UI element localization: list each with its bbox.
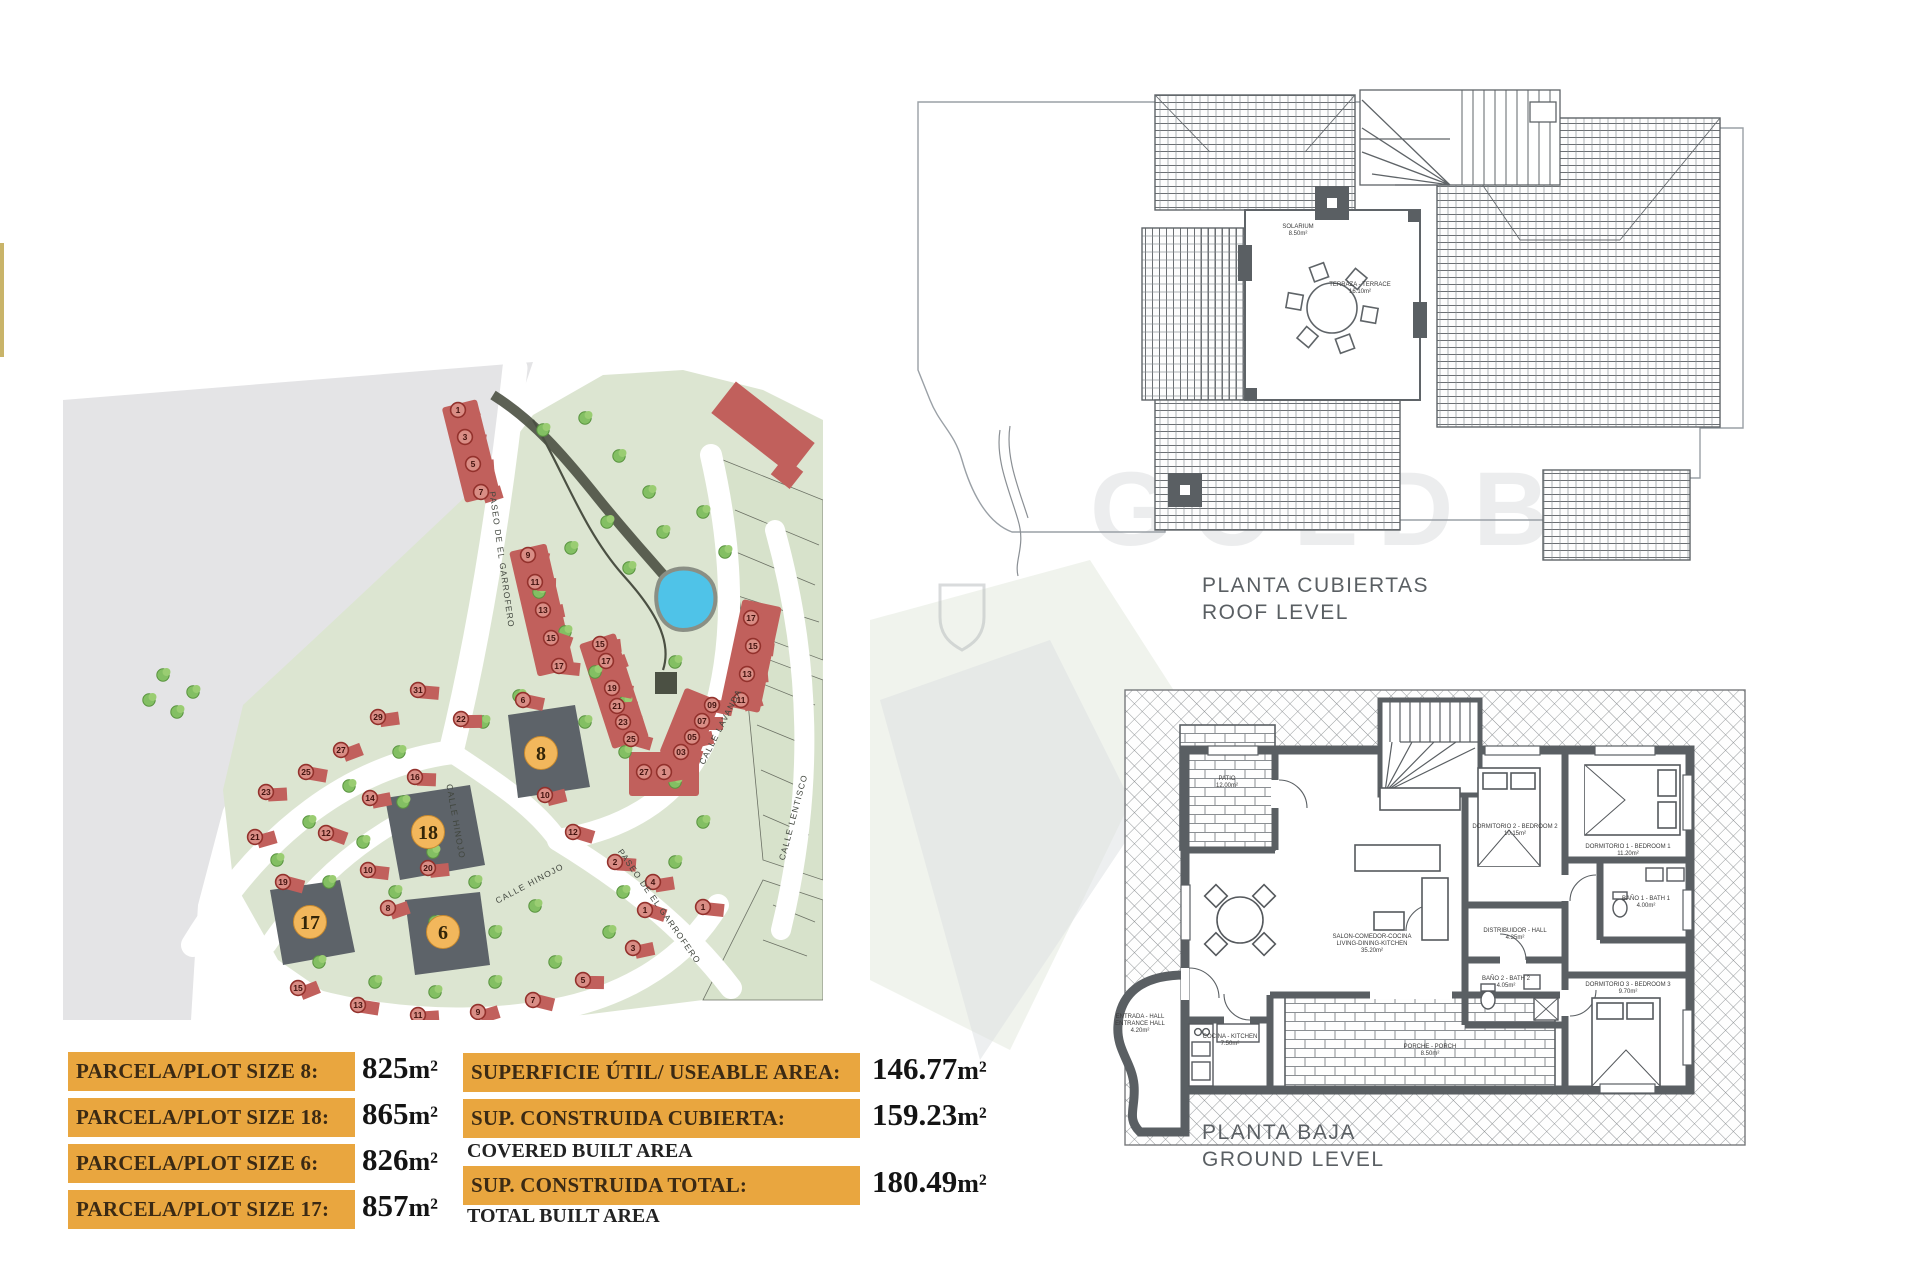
svg-text:7: 7 — [531, 995, 536, 1005]
sofa — [1422, 878, 1448, 940]
svg-text:03: 03 — [676, 747, 686, 757]
chair — [1361, 306, 1378, 323]
ground-plan: PATIO12.00m²SALON-COMEDOR-COCINALIVING-D… — [940, 680, 1750, 1200]
svg-text:14: 14 — [365, 793, 375, 803]
svg-text:15: 15 — [748, 641, 758, 651]
svg-text:09: 09 — [707, 700, 717, 710]
svg-text:20: 20 — [423, 863, 433, 873]
svg-text:22: 22 — [456, 714, 466, 724]
area-sublabel: COVERED BUILT AREA — [467, 1140, 693, 1163]
svg-text:6: 6 — [438, 922, 448, 944]
plot-size-row: PARCELA/PLOT SIZE 6: — [68, 1144, 355, 1183]
svg-text:13: 13 — [742, 669, 752, 679]
svg-text:8: 8 — [536, 743, 546, 765]
svg-text:16: 16 — [410, 772, 420, 782]
featured-plot-marker: 18 — [412, 816, 445, 849]
svg-text:19: 19 — [278, 877, 288, 887]
plot-size-row: PARCELA/PLOT SIZE 8: — [68, 1052, 355, 1091]
area-value: 180.49m² — [872, 1164, 987, 1200]
svg-text:23: 23 — [261, 787, 271, 797]
plot-size-label: PARCELA/PLOT SIZE 6: — [76, 1151, 318, 1176]
porch-brick — [1285, 995, 1555, 1090]
svg-text:31: 31 — [413, 685, 423, 695]
featured-plot-marker: 8 — [525, 737, 558, 770]
brochure-page: GOLDBR — [0, 0, 1920, 1280]
plot-size-value: 826m² — [362, 1142, 438, 1178]
area-sublabel: TOTAL BUILT AREA — [467, 1205, 660, 1228]
area-value: 146.77m² — [872, 1051, 987, 1087]
area-row: SUP. CONSTRUIDA TOTAL: — [463, 1166, 860, 1205]
svg-text:25: 25 — [626, 734, 636, 744]
svg-text:15: 15 — [595, 639, 605, 649]
chair — [1286, 293, 1303, 310]
svg-text:3: 3 — [631, 943, 636, 953]
svg-text:1: 1 — [701, 902, 706, 912]
svg-text:15: 15 — [546, 633, 556, 643]
bed — [1585, 765, 1680, 835]
svg-text:15: 15 — [293, 983, 303, 993]
svg-text:1: 1 — [456, 405, 461, 415]
svg-text:27: 27 — [336, 745, 346, 755]
featured-plot-marker: 6 — [427, 916, 460, 949]
featured-plot-marker: 17 — [294, 906, 327, 939]
svg-text:5: 5 — [581, 975, 586, 985]
svg-text:17: 17 — [300, 912, 320, 934]
area-value: 159.23m² — [872, 1097, 987, 1133]
pool — [656, 569, 715, 631]
svg-text:17: 17 — [601, 656, 611, 666]
svg-text:07: 07 — [697, 716, 707, 726]
dining-table — [1217, 897, 1263, 943]
svg-text:17: 17 — [746, 613, 756, 623]
svg-text:12: 12 — [568, 827, 578, 837]
ground-stairs — [1380, 700, 1480, 795]
svg-text:23: 23 — [618, 717, 628, 727]
bed — [1592, 998, 1660, 1086]
coffee-table — [1374, 912, 1404, 930]
svg-text:11: 11 — [414, 1010, 423, 1020]
svg-text:17: 17 — [554, 661, 564, 671]
svg-text:11: 11 — [531, 577, 540, 587]
svg-text:6: 6 — [521, 695, 526, 705]
svg-text:10: 10 — [363, 865, 373, 875]
site-plan: 1357911131517151719212325271171513110907… — [63, 360, 823, 1020]
svg-text:3: 3 — [463, 432, 468, 442]
plot-size-label: PARCELA/PLOT SIZE 18: — [76, 1105, 329, 1130]
svg-text:1: 1 — [643, 905, 648, 915]
svg-text:10: 10 — [540, 790, 550, 800]
ground-title: PLANTA BAJA — [1202, 1121, 1356, 1144]
area-label: SUPERFICIE ÚTIL/ USEABLE AREA: — [471, 1060, 841, 1085]
svg-text:21: 21 — [250, 832, 260, 842]
svg-text:29: 29 — [373, 712, 383, 722]
area-row: SUP. CONSTRUIDA CUBIERTA: — [463, 1099, 860, 1138]
plot-size-label: PARCELA/PLOT SIZE 17: — [76, 1197, 329, 1222]
roof-curved-line — [999, 426, 1028, 576]
svg-text:8: 8 — [386, 903, 391, 913]
roof-subtitle: ROOF LEVEL — [1202, 601, 1349, 620]
svg-text:7: 7 — [479, 487, 484, 497]
svg-text:18: 18 — [418, 822, 438, 844]
gold-edge-strip — [0, 243, 4, 357]
svg-text:13: 13 — [538, 605, 548, 615]
roof-stairs — [1360, 90, 1560, 185]
bed — [1478, 768, 1540, 866]
sideboard — [1380, 788, 1460, 810]
area-row: SUPERFICIE ÚTIL/ USEABLE AREA: — [463, 1053, 860, 1092]
plot-size-value: 865m² — [362, 1096, 438, 1132]
plot-size-row: PARCELA/PLOT SIZE 18: — [68, 1098, 355, 1137]
area-label: SUP. CONSTRUIDA TOTAL: — [471, 1173, 747, 1198]
ground-subtitle: GROUND LEVEL — [1202, 1148, 1385, 1171]
svg-text:5: 5 — [471, 459, 476, 469]
area-label: SUP. CONSTRUIDA CUBIERTA: — [471, 1106, 785, 1131]
plot-size-value: 825m² — [362, 1050, 438, 1086]
svg-text:9: 9 — [476, 1007, 481, 1017]
svg-text:13: 13 — [353, 1000, 363, 1010]
room-label: PATIO12.00m² — [1216, 776, 1238, 789]
plot-size-label: PARCELA/PLOT SIZE 8: — [76, 1059, 318, 1084]
svg-text:2: 2 — [613, 857, 618, 867]
roof-title: PLANTA CUBIERTAS — [1202, 574, 1429, 597]
svg-text:27: 27 — [639, 767, 649, 777]
svg-text:19: 19 — [607, 683, 617, 693]
plot-size-row: PARCELA/PLOT SIZE 17: — [68, 1190, 355, 1229]
svg-text:21: 21 — [612, 701, 622, 711]
svg-text:9: 9 — [526, 550, 531, 560]
pergola — [655, 672, 677, 694]
sofa — [1355, 845, 1440, 871]
roof-plan: SOLARIUM8.50m²TERRAZA - TERRACE16.10m² P… — [900, 40, 1750, 620]
plot-size-value: 857m² — [362, 1188, 438, 1224]
svg-text:1: 1 — [662, 767, 667, 777]
svg-text:25: 25 — [301, 767, 311, 777]
svg-text:05: 05 — [687, 732, 697, 742]
svg-text:12: 12 — [321, 828, 331, 838]
